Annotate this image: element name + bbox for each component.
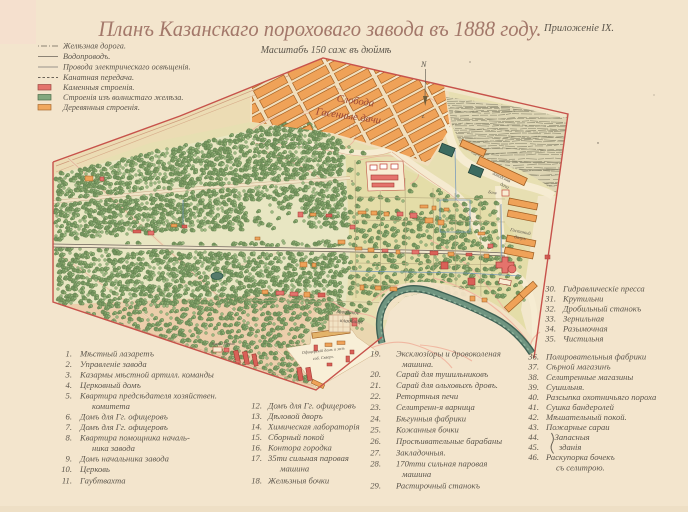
svg-text:10.: 10. xyxy=(61,464,72,474)
svg-text:14.: 14. xyxy=(251,422,262,432)
svg-text:Масштабъ 150 саж въ дюймѣ: Масштабъ 150 саж въ дюймѣ xyxy=(260,45,392,56)
svg-text:29.: 29. xyxy=(370,481,381,491)
svg-text:Домъ для Гг. офицеровъ: Домъ для Гг. офицеровъ xyxy=(79,412,168,422)
svg-text:35ти сильная паровая: 35ти сильная паровая xyxy=(267,453,349,463)
svg-text:Желѣзныя бочки: Желѣзныя бочки xyxy=(267,476,329,486)
svg-text:22.: 22. xyxy=(370,391,381,401)
svg-text:20.: 20. xyxy=(370,369,381,379)
svg-text:21.: 21. xyxy=(370,380,381,390)
svg-text:Строенія изъ волнистаго желѣза: Строенія изъ волнистаго желѣза. xyxy=(63,93,183,102)
svg-text:Водопроводъ.: Водопроводъ. xyxy=(63,52,110,61)
svg-text:37.: 37. xyxy=(527,362,539,372)
svg-text:Крутильни: Крутильни xyxy=(562,294,603,304)
svg-text:38.: 38. xyxy=(527,372,539,382)
svg-text:15.: 15. xyxy=(251,432,262,442)
svg-text:Сборный покой: Сборный покой xyxy=(268,432,325,442)
svg-text:Канатная передача.: Канатная передача. xyxy=(62,73,134,82)
svg-text:42.: 42. xyxy=(528,412,539,422)
svg-text:Церковь: Церковь xyxy=(79,464,110,474)
svg-text:машина: машина xyxy=(401,469,431,479)
svg-text:17.: 17. xyxy=(251,453,262,463)
svg-text:13.: 13. xyxy=(251,411,262,421)
svg-text:съ селитрою.: съ селитрою. xyxy=(556,463,605,473)
svg-text:Гидравлическіе пресса: Гидравлическіе пресса xyxy=(562,284,645,294)
svg-text:Контора городка: Контора городка xyxy=(267,443,332,453)
svg-text:23.: 23. xyxy=(370,402,381,412)
svg-text:2.: 2. xyxy=(66,359,72,369)
svg-text:Раскупорка бочекъ: Раскупорка бочекъ xyxy=(545,452,615,462)
svg-text:Сарай для тушильниковъ: Сарай для тушильниковъ xyxy=(396,369,489,379)
svg-text:16.: 16. xyxy=(251,443,262,453)
svg-text:Квартира помощника началь-: Квартира помощника началь- xyxy=(79,433,190,443)
svg-text:Запасныя: Запасныя xyxy=(546,432,590,442)
svg-text:27.: 27. xyxy=(370,448,381,458)
svg-text:Просѣивательные барабаны: Просѣивательные барабаны xyxy=(395,436,502,446)
svg-text:45.: 45. xyxy=(528,442,539,452)
svg-text:170тти сильная паровая: 170тти сильная паровая xyxy=(396,459,487,469)
svg-text:32.: 32. xyxy=(544,304,556,314)
svg-text:8.: 8. xyxy=(66,433,72,443)
svg-text:41.: 41. xyxy=(528,402,539,412)
svg-text:Церковный домъ: Церковный домъ xyxy=(79,380,141,390)
svg-text:1.: 1. xyxy=(66,349,72,359)
svg-text:Бѣгунныя фабрики: Бѣгунныя фабрики xyxy=(395,414,466,424)
svg-text:N: N xyxy=(420,60,427,69)
svg-text:Планъ Казанскаго пороховаго за: Планъ Казанскаго пороховаго завода въ 18… xyxy=(98,16,542,41)
svg-text:4.: 4. xyxy=(66,380,72,390)
svg-text:комитета: комитета xyxy=(92,401,130,411)
svg-text:Разсыпка охотничьяго пороха: Разсыпка охотничьяго пороха xyxy=(545,392,656,402)
svg-text:43.: 43. xyxy=(528,422,539,432)
svg-text:18.: 18. xyxy=(251,476,262,486)
svg-text:z: z xyxy=(422,113,425,120)
svg-text:Зернильная: Зернильная xyxy=(563,314,604,324)
svg-text:34.: 34. xyxy=(544,324,556,334)
svg-text:Казармы мѣстной артилл. команд: Казармы мѣстной артилл. команды xyxy=(79,370,214,380)
svg-text:машина.: машина. xyxy=(401,359,433,369)
svg-text:Химическая лабораторія: Химическая лабораторія xyxy=(267,422,360,432)
svg-text:Сѣрной магазинъ: Сѣрной магазинъ xyxy=(546,362,611,372)
svg-text:19.: 19. xyxy=(370,349,381,359)
svg-text:9.: 9. xyxy=(66,454,72,464)
svg-text:Дѣловой дворъ: Дѣловой дворъ xyxy=(267,411,323,421)
svg-text:Сушка бандеролей: Сушка бандеролей xyxy=(546,402,615,412)
svg-text:3.: 3. xyxy=(65,370,72,380)
svg-text:Ретортныя печи: Ретортныя печи xyxy=(395,391,458,401)
svg-text:28.: 28. xyxy=(370,459,381,469)
svg-text:Мѣстный лазаретъ: Мѣстный лазаретъ xyxy=(79,349,154,359)
svg-text:40.: 40. xyxy=(528,392,539,402)
svg-text:Чистильня: Чистильня xyxy=(563,334,603,344)
svg-text:Растирочный станокъ: Растирочный станокъ xyxy=(395,481,481,491)
svg-text:Управленіе завода: Управленіе завода xyxy=(80,359,147,369)
svg-text:11.: 11. xyxy=(62,476,72,486)
svg-text:Пожарные сараи: Пожарные сараи xyxy=(545,422,610,432)
svg-text:Завод. Управа: Завод. Управа xyxy=(212,342,235,346)
svg-text:26.: 26. xyxy=(370,436,381,446)
svg-text:46.: 46. xyxy=(528,452,539,462)
svg-text:Каменныя строенія.: Каменныя строенія. xyxy=(62,83,134,92)
svg-text:Желѣзная дорога.: Желѣзная дорога. xyxy=(62,42,126,51)
svg-text:Дробильный станокъ: Дробильный станокъ xyxy=(562,304,642,314)
svg-text:Полировательныя фабрики: Полировательныя фабрики xyxy=(545,352,646,362)
svg-text:7.: 7. xyxy=(66,422,72,432)
svg-text:Гаубтвахта: Гаубтвахта xyxy=(79,476,126,486)
svg-text:машина: машина xyxy=(279,464,309,474)
svg-text:30.: 30. xyxy=(544,284,556,294)
svg-text:ника завода: ника завода xyxy=(92,443,135,453)
svg-text:Мѣшательный покой.: Мѣшательный покой. xyxy=(545,412,627,422)
svg-text:Провода электрическаго освѣщен: Провода электрическаго освѣщенія. xyxy=(62,63,191,72)
svg-text:Сарай для ольховыхъ дровъ.: Сарай для ольховыхъ дровъ. xyxy=(396,380,498,390)
svg-text:44.: 44. xyxy=(528,432,539,442)
svg-text:Деревянныя строенія.: Деревянныя строенія. xyxy=(62,103,140,112)
svg-text:31.: 31. xyxy=(544,294,556,304)
svg-text:Селитренн-я варница: Селитренн-я варница xyxy=(396,402,475,412)
svg-text:Домъ для Гг. офицеровъ: Домъ для Гг. офицеровъ xyxy=(267,401,356,411)
svg-text:Эксклюзіоры и дровоколеная: Эксклюзіоры и дровоколеная xyxy=(396,349,501,359)
svg-text:24.: 24. xyxy=(370,414,381,424)
svg-text:33.: 33. xyxy=(544,314,556,324)
svg-text:Сушильня.: Сушильня. xyxy=(546,382,584,392)
svg-text:35.: 35. xyxy=(544,334,556,344)
svg-text:Домъ для Гг. офицеровъ: Домъ для Гг. офицеровъ xyxy=(79,422,168,432)
svg-text:Разымочная: Разымочная xyxy=(562,324,608,334)
svg-text:25.: 25. xyxy=(370,425,381,435)
svg-text:Квартира предсѣдателя хозяйств: Квартира предсѣдателя хозяйствен. xyxy=(79,391,217,401)
svg-text:36.: 36. xyxy=(527,352,539,362)
svg-text:12.: 12. xyxy=(251,401,262,411)
svg-text:Селитренные магазины: Селитренные магазины xyxy=(546,372,633,382)
svg-text:Домъ начальника завода: Домъ начальника завода xyxy=(79,454,169,464)
svg-text:5.: 5. xyxy=(66,391,72,401)
svg-text:Закладочныя.: Закладочныя. xyxy=(396,448,446,458)
svg-text:Приложеніе IX.: Приложеніе IX. xyxy=(543,23,614,34)
svg-text:6.: 6. xyxy=(66,412,72,422)
svg-text:39.: 39. xyxy=(527,382,539,392)
svg-text:Кожанныя бочки: Кожанныя бочки xyxy=(395,425,459,435)
